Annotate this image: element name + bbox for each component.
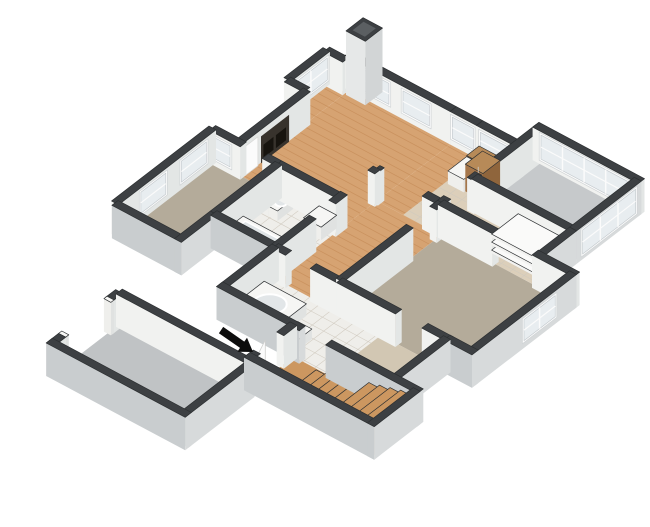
chimney (346, 18, 383, 106)
floor-plan-canvas (0, 0, 650, 527)
wall (368, 166, 381, 207)
garage-door-jamb (104, 296, 114, 335)
floor-plan-3d-render (0, 0, 650, 527)
